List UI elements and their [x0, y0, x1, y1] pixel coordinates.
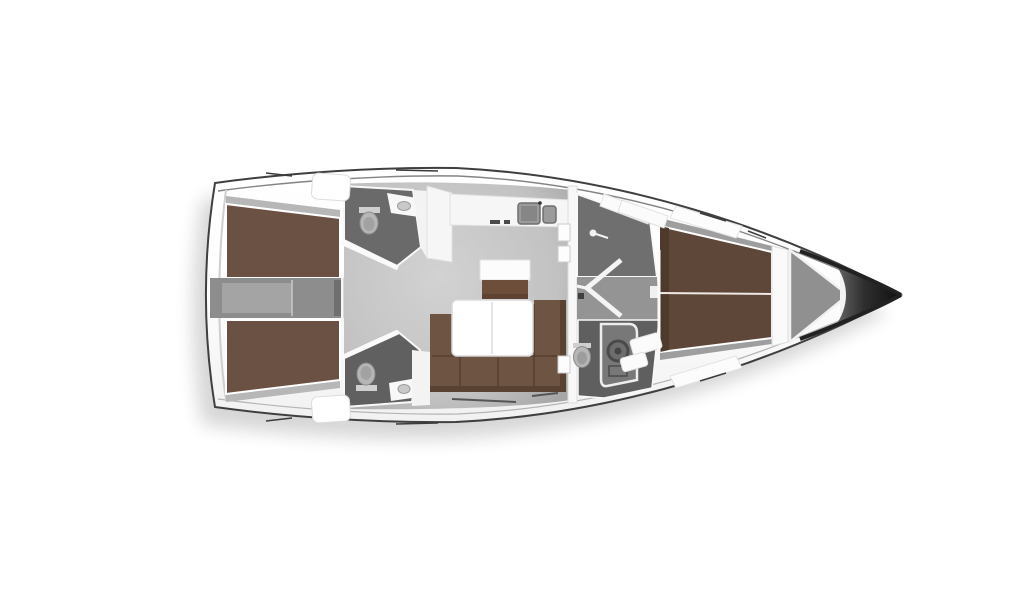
galley-sink-small	[543, 206, 556, 223]
toilet-seat	[361, 366, 372, 380]
sofa-backrest-bottom	[430, 386, 566, 392]
stove-dash	[504, 220, 510, 224]
aft-cabin-starboard	[226, 320, 340, 402]
v-berth-headboard	[660, 226, 669, 352]
toilet-seat	[577, 352, 587, 365]
island-base-shadow	[482, 294, 528, 299]
toilet-seat	[364, 217, 375, 231]
galley-faucet	[538, 201, 542, 205]
locker	[558, 224, 570, 241]
locker	[558, 356, 570, 373]
toilet-tank	[356, 385, 377, 391]
salon-table	[452, 300, 533, 356]
island-top	[480, 260, 530, 280]
yacht-floor-plan	[0, 0, 1024, 600]
aft-cabin-port	[226, 196, 340, 278]
shower-head-icon	[590, 230, 597, 237]
sofa-backrest-right	[560, 300, 566, 392]
corridor-rug	[222, 283, 292, 313]
double-berth-port	[226, 204, 340, 278]
door-handle	[578, 293, 584, 299]
washbasin	[398, 385, 410, 394]
deck-hatch	[311, 395, 351, 424]
deck-hatch	[311, 173, 351, 202]
deck-seam	[396, 170, 438, 171]
shower-drain-center	[615, 348, 622, 355]
double-berth-starboard	[226, 320, 340, 394]
stove-dash	[490, 220, 500, 224]
engine-corridor	[210, 278, 344, 318]
corridor-shadow	[334, 280, 342, 316]
galley-counter-leg	[427, 186, 452, 262]
v-berth-seam	[658, 293, 772, 294]
white-wedge-aft-sofa	[412, 350, 430, 406]
island-seat	[480, 260, 530, 299]
galley-sink-inner	[521, 206, 537, 221]
washbasin	[398, 202, 411, 211]
deck-seam	[396, 423, 438, 424]
berth-foot-bulkhead	[772, 246, 788, 346]
locker	[558, 246, 570, 262]
